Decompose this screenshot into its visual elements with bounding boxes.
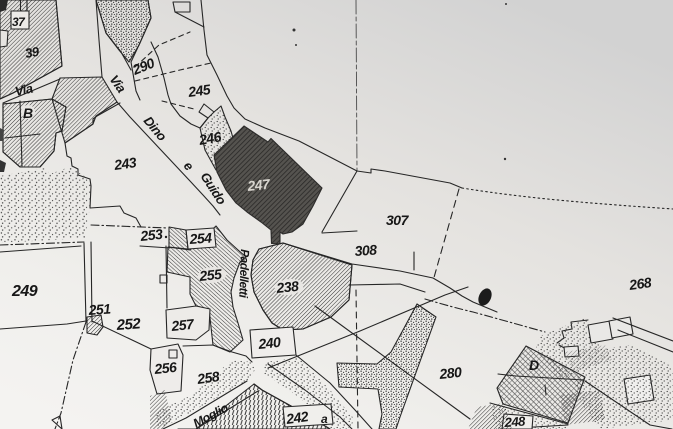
svg-text:242: 242: [284, 408, 310, 427]
svg-text:253: 253: [139, 226, 164, 244]
svg-text:243: 243: [112, 154, 138, 173]
svg-text:247: 247: [246, 176, 272, 194]
svg-text:251: 251: [87, 300, 112, 318]
svg-text:245: 245: [186, 81, 212, 100]
svg-text:308: 308: [354, 241, 378, 259]
svg-text:255: 255: [198, 266, 223, 284]
svg-text:D: D: [529, 357, 539, 373]
svg-text:249: 249: [11, 283, 38, 300]
svg-text:B: B: [23, 105, 33, 121]
svg-text:268: 268: [627, 274, 653, 293]
svg-text:257: 257: [170, 316, 196, 334]
svg-text:Padelletti: Padelletti: [236, 249, 252, 299]
svg-text:252: 252: [115, 315, 142, 334]
svg-text:280: 280: [438, 364, 463, 382]
svg-text:258: 258: [195, 368, 221, 387]
svg-text:307: 307: [386, 212, 410, 228]
svg-text:37: 37: [12, 15, 26, 29]
svg-text:238: 238: [275, 278, 300, 296]
svg-text:254: 254: [188, 229, 213, 247]
svg-text:248: 248: [503, 414, 526, 429]
svg-text:256: 256: [153, 359, 178, 377]
svg-text:240: 240: [257, 334, 282, 352]
svg-text:a: a: [321, 412, 328, 426]
